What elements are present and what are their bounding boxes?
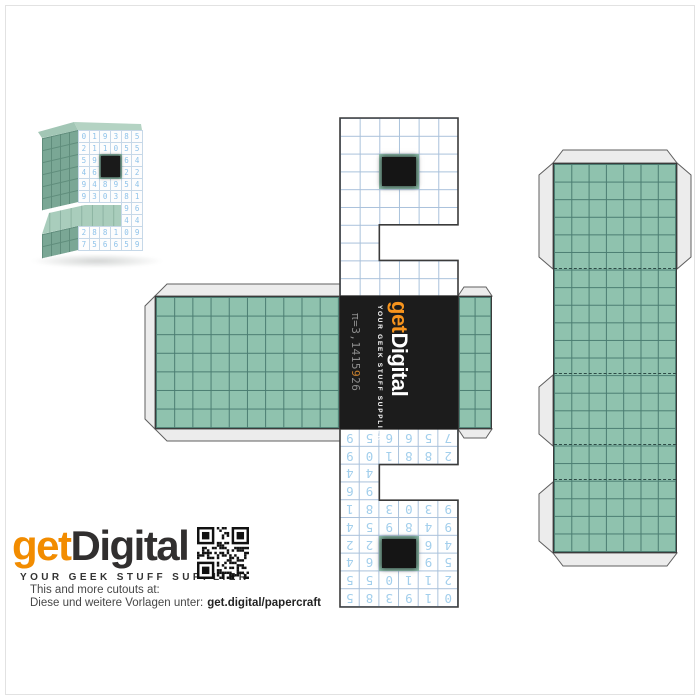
grid-digit: 3 [419,500,439,518]
papercraft-sheet: 0193852110555964462294895493038196442881… [0,0,700,700]
grid-digit: 9 [379,518,399,536]
grid-digit: 2 [438,447,458,465]
flap-side-top [553,150,677,163]
preview-peg-hole [99,154,121,179]
grid-digit: 9 [340,429,360,447]
grid-digit: 5 [360,518,380,536]
cutout-side-band-right [458,296,492,429]
flap-arm-left-cap [145,296,155,429]
flap-side-left-3 [539,482,553,553]
grid-digit: 1 [399,571,419,589]
grid-digit: 8 [399,447,419,465]
fold-line [554,373,676,374]
grid-digit: 8 [419,447,439,465]
grid-digit: 0 [399,500,419,518]
preview-3d-model: 0193852110555964462294895493038196442881… [28,106,180,276]
grid-digit: 5 [340,571,360,589]
grid-digit: 8 [360,500,380,518]
grid-digit: 7 [438,429,458,447]
grid-digit: 0 [379,571,399,589]
grid-digit: 1 [379,447,399,465]
flap-side-left-1 [539,163,553,269]
grid-digit: 5 [419,429,439,447]
grid-digit: 5 [438,554,458,572]
grid-digit: 9 [438,500,458,518]
grid-digit: 2 [438,571,458,589]
grid-digit: 2 [360,536,380,554]
preview-peg-hole-dark [101,156,119,177]
grid-digit: 3 [379,500,399,518]
flap-side-left-2 [539,375,553,446]
grid-digit: 8 [360,589,380,607]
grid-digit: 2 [340,536,360,554]
grid-digit: 4 [438,536,458,554]
grid-digit: 9 [419,554,439,572]
panel-logo-digital: Digital [387,333,412,397]
logo-panel: π=3,1415926 YOUR GEEK STUFF SUPPLIER get… [340,296,458,429]
flap-arm-top-right [458,287,492,296]
grid-digit: 4 [340,554,360,572]
grid-digit: 4 [360,465,380,483]
panel-tagline: YOUR GEEK STUFF SUPPLIER [376,305,383,442]
grid-digit: 3 [379,589,399,607]
grid-digit: 1 [340,500,360,518]
grid-digit: 9 [399,589,419,607]
pi-text: π=3,1415926 [349,313,362,391]
grid-digit: 5 [360,571,380,589]
grid-digit: 4 [419,518,439,536]
cutout-wrap-band [553,163,677,553]
fold-line [554,479,676,480]
grid-digit: 9 [360,482,380,500]
grid-digit: 0 [360,447,380,465]
peg-hole [379,536,418,572]
peg-hole-dark [382,539,415,569]
grid-digit: 9 [438,518,458,536]
grid-digit: 9 [340,447,360,465]
peg-hole-dark [382,157,415,187]
panel-logo-get: get [387,301,412,333]
grid-digit: 4 [340,465,360,483]
fold-line [554,268,676,269]
grid-digit: 5 [340,589,360,607]
grid-digit: 0 [438,589,458,607]
grid-digit: 1 [419,589,439,607]
grid-digit: 1 [419,571,439,589]
grid-digit: 6 [360,554,380,572]
peg-hole [379,154,418,190]
preview-front-face: 0193852110555964462294895493038196442881… [28,106,180,276]
cutout-front-face: 0193852110555964462294895493038196442881… [340,429,458,607]
flap-side-right-1 [677,163,691,269]
grid-digit: 4 [340,518,360,536]
grid-digit: 8 [399,518,419,536]
flap-arm-top-left [155,284,340,296]
flap-side-bottom [553,553,677,566]
grid-digit: 6 [419,536,439,554]
flap-arm-bottom-right [458,429,492,438]
grid-digit: 6 [340,482,360,500]
cutout-back-face [340,118,458,296]
cutout-side-band-left [155,296,340,429]
fold-line [554,444,676,445]
grid-digit: 6 [399,429,419,447]
flap-arm-bottom-left [155,429,340,441]
preview-cell: 9 [131,238,143,251]
panel-logo: getDigital [386,301,412,396]
